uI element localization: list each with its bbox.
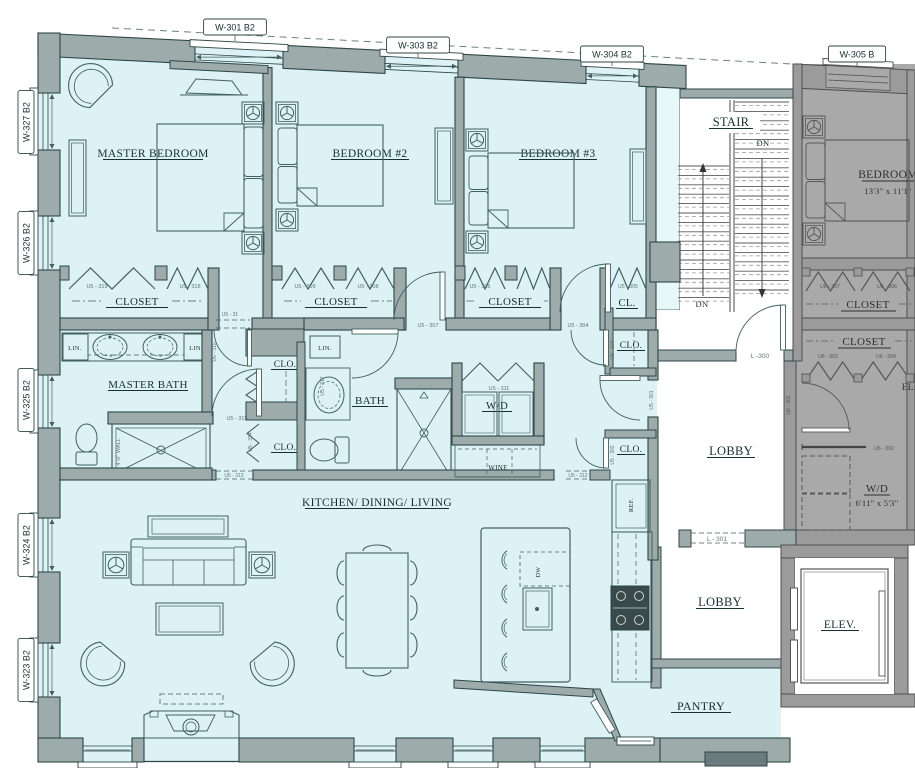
svg-text:W/D: W/D xyxy=(866,483,888,495)
svg-text:BEDROOM #3: BEDROOM #3 xyxy=(521,148,596,160)
svg-text:LOBBY: LOBBY xyxy=(698,595,742,609)
svg-text:W-326 B2: W-326 B2 xyxy=(22,223,32,263)
svg-text:CLOSET: CLOSET xyxy=(846,299,889,311)
svg-text:U6 - 301: U6 - 301 xyxy=(786,395,792,414)
svg-text:LIN.: LIN. xyxy=(68,345,82,352)
svg-text:U5 - 306: U5 - 306 xyxy=(469,284,490,290)
svg-text:U5 - 309: U5 - 309 xyxy=(294,284,315,290)
svg-text:W-327 B2: W-327 B2 xyxy=(22,102,32,142)
svg-text:CLOSET: CLOSET xyxy=(115,296,158,308)
svg-text:U5 - 31: U5 - 31 xyxy=(222,312,239,318)
svg-text:CLO.: CLO. xyxy=(620,445,643,455)
svg-text:U5 - 303: U5 - 303 xyxy=(610,340,616,359)
svg-text:U5 - 317: U5 - 317 xyxy=(320,376,326,395)
svg-text:DN: DN xyxy=(696,299,709,309)
svg-text:DW: DW xyxy=(536,567,542,578)
svg-text:U5 - 301: U5 - 301 xyxy=(649,390,655,409)
svg-text:CL.: CL. xyxy=(619,298,636,309)
svg-text:U5 - 308: U5 - 308 xyxy=(357,284,378,290)
svg-text:W-303 B2: W-303 B2 xyxy=(398,41,438,51)
svg-text:BATH: BATH xyxy=(355,395,385,407)
svg-text:CLOSET: CLOSET xyxy=(488,296,531,308)
svg-text:CLO.: CLO. xyxy=(274,360,297,370)
svg-text:U5 - 307: U5 - 307 xyxy=(417,323,438,329)
svg-text:LIN.: LIN. xyxy=(318,345,332,352)
svg-text:MASTER BATH: MASTER BATH xyxy=(108,379,187,391)
svg-text:L - 301: L - 301 xyxy=(707,536,727,543)
svg-text:L -300: L -300 xyxy=(751,353,770,360)
svg-text:U5 - 305: U5 - 305 xyxy=(618,284,638,290)
svg-text:W-324 B2: W-324 B2 xyxy=(22,525,32,565)
svg-text:U6 - 302: U6 - 302 xyxy=(874,446,894,452)
svg-text:U5 - 318: U5 - 318 xyxy=(179,284,200,290)
svg-text:U6 - 306: U6 - 306 xyxy=(877,284,897,290)
svg-text:CLOSET: CLOSET xyxy=(842,336,885,348)
svg-text:EL.: EL. xyxy=(902,382,915,392)
svg-text:U6 - 304: U6 - 304 xyxy=(876,354,896,360)
svg-text:U5 - 315: U5 - 315 xyxy=(226,416,247,422)
svg-text:CLO.: CLO. xyxy=(274,443,297,453)
svg-text:W-305 B: W-305 B xyxy=(840,50,875,60)
svg-text:U5 - 319: U5 - 319 xyxy=(86,284,107,290)
svg-text:4'-0" WALL: 4'-0" WALL xyxy=(116,438,122,465)
svg-text:6'11" x 5'3": 6'11" x 5'3" xyxy=(855,498,898,508)
svg-text:PANTRY: PANTRY xyxy=(677,699,725,713)
svg-text:STAIR: STAIR xyxy=(713,115,750,129)
svg-text:BEDROOM #2: BEDROOM #2 xyxy=(333,148,408,160)
svg-text:U6 - 303: U6 - 303 xyxy=(818,354,838,360)
svg-text:LIN.: LIN. xyxy=(189,345,203,352)
svg-text:U5 - 304: U5 - 304 xyxy=(567,323,588,329)
svg-text:U5 - 312: U5 - 312 xyxy=(568,473,587,479)
svg-text:MASTER BEDROOM: MASTER BEDROOM xyxy=(97,148,208,160)
svg-text:W-301 B2: W-301 B2 xyxy=(215,23,255,33)
svg-text:U5 - 313: U5 - 313 xyxy=(224,473,243,479)
svg-text:KITCHEN/ DINING/ LIVING: KITCHEN/ DINING/ LIVING xyxy=(302,497,452,509)
svg-text:U5 - 314: U5 - 314 xyxy=(248,432,254,451)
svg-text:U5 - 311: U5 - 311 xyxy=(489,386,510,392)
svg-text:BEDROOM: BEDROOM xyxy=(858,169,915,181)
svg-text:13'3" x 11'1": 13'3" x 11'1" xyxy=(864,186,912,196)
svg-text:W-323 B2: W-323 B2 xyxy=(22,650,32,690)
svg-text:U5 - 302: U5 - 302 xyxy=(610,445,616,464)
svg-text:REF.: REF. xyxy=(628,498,635,512)
svg-text:CLO.: CLO. xyxy=(620,341,643,351)
svg-text:ELEV.: ELEV. xyxy=(824,619,856,631)
svg-text:U6 - 307: U6 - 307 xyxy=(820,284,840,290)
svg-text:W-304 B2: W-304 B2 xyxy=(592,50,632,60)
svg-text:W-325 B2: W-325 B2 xyxy=(22,380,32,420)
svg-text:CLOSET: CLOSET xyxy=(314,296,357,308)
svg-text:DN: DN xyxy=(757,138,770,148)
svg-text:WINE: WINE xyxy=(488,464,507,472)
svg-text:LOBBY: LOBBY xyxy=(709,444,753,458)
